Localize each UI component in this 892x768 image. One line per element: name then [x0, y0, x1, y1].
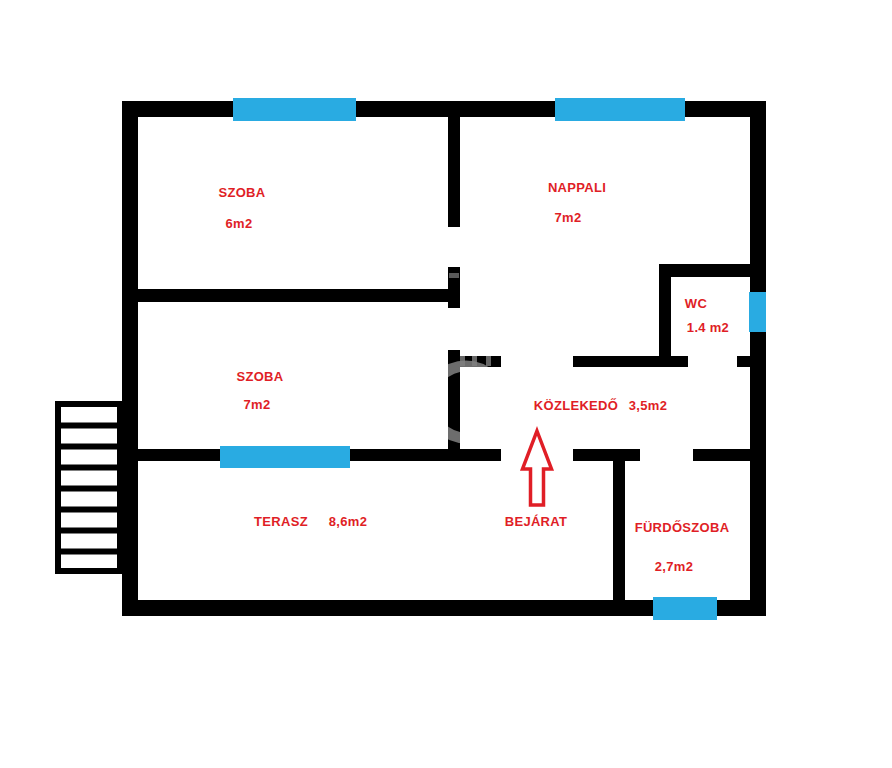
entrance-label: BEJÁRAT	[505, 514, 568, 529]
stairs-icon	[58, 404, 120, 571]
room-area-terasz: 8,6m2	[329, 514, 367, 529]
wall-kozlekedo-top-right-stub	[737, 356, 750, 367]
wall-terasz-top-left	[138, 449, 220, 461]
outer-wall-right	[750, 101, 766, 616]
room-name-szoba2: SZOBA	[237, 369, 284, 384]
wall-wc-left	[659, 264, 671, 367]
wall-furdoszoba-left	[613, 449, 625, 600]
room-name-terasz: TERASZ	[254, 514, 308, 529]
room-name-nappali: NAPPALI	[548, 180, 606, 195]
wall-furdoszoba-top-right	[693, 449, 750, 461]
window-szoba2-icon	[220, 446, 350, 468]
room-area-wc: 1.4 m2	[687, 320, 729, 335]
window-szoba1-icon	[233, 98, 356, 121]
room-name-wc: WC	[685, 296, 708, 311]
window-nappali-icon	[555, 98, 685, 121]
window-wc-icon	[749, 292, 766, 332]
floor-plan: SZOBA 6m2 NAPPALI 7m2 WC 1.4 m2 SZOBA 7m…	[0, 0, 892, 768]
room-area-nappali: 7m2	[555, 210, 582, 225]
floor-plan-canvas: SZOBA 6m2 NAPPALI 7m2 WC 1.4 m2 SZOBA 7m…	[0, 0, 892, 768]
wall-terasz-top-mid	[350, 449, 501, 461]
wall-wc-top	[659, 264, 750, 277]
outer-wall-left	[122, 101, 138, 616]
room-name-kozlekedo: KÖZLEKEDŐ	[534, 398, 618, 413]
wall-szoba-divider	[138, 289, 460, 302]
room-labels: SZOBA 6m2 NAPPALI 7m2 WC 1.4 m2 SZOBA 7m…	[219, 180, 730, 574]
wall-furdoszoba-top-left	[573, 449, 640, 461]
room-area-szoba2: 7m2	[244, 397, 271, 412]
room-area-kozlekedo: 3,5m2	[629, 398, 667, 413]
entrance-arrow-icon	[523, 431, 552, 505]
room-area-szoba1: 6m2	[226, 216, 253, 231]
room-area-furdoszoba: 2,7m2	[655, 559, 693, 574]
wall-center-upper	[448, 117, 460, 227]
room-name-furdoszoba: FÜRDŐSZOBA	[635, 520, 730, 535]
room-name-szoba1: SZOBA	[219, 185, 266, 200]
window-furdoszoba-icon	[653, 597, 717, 620]
